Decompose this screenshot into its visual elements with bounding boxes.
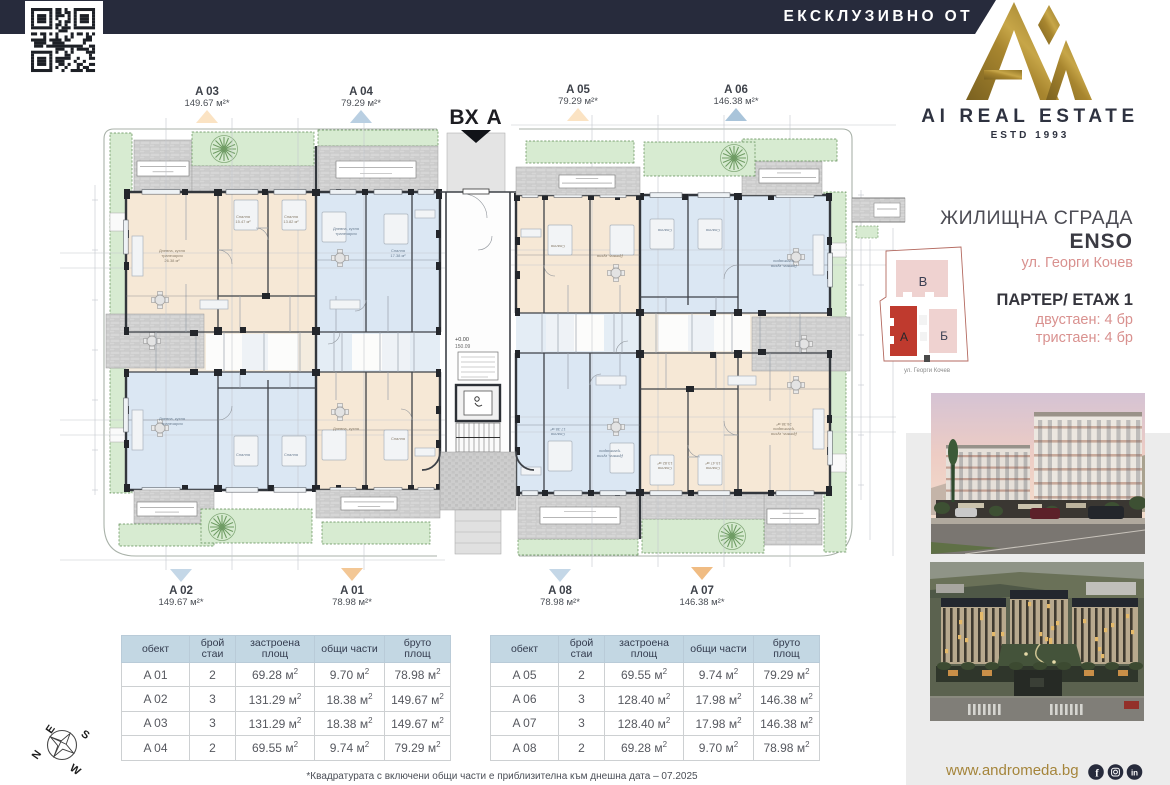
svg-text:A 05: A 05	[566, 84, 590, 96]
svg-text:78.98 м²*: 78.98 м²*	[540, 597, 580, 608]
svg-text:150.09: 150.09	[455, 344, 471, 350]
svg-text:E: E	[44, 723, 58, 736]
svg-text:ул. Георги Кочев: ул. Георги Кочев	[904, 368, 950, 374]
svg-text:В: В	[919, 274, 928, 289]
svg-text:in: in	[1131, 769, 1138, 778]
svg-text:W: W	[67, 762, 83, 778]
svg-text:N: N	[30, 748, 44, 761]
svg-text:трапезария: трапезария	[335, 231, 356, 236]
svg-text:A 06: A 06	[724, 84, 748, 96]
svg-text:Спалня: Спалня	[284, 452, 298, 457]
svg-text:149.67 м²*: 149.67 м²*	[158, 597, 203, 608]
svg-text:A 08: A 08	[548, 585, 572, 597]
svg-text:146.38 м²*: 146.38 м²*	[679, 597, 724, 608]
svg-text:A 07: A 07	[690, 585, 714, 597]
svg-text:17.38 м²: 17.38 м²	[390, 253, 406, 258]
svg-text:A 03: A 03	[195, 86, 219, 98]
svg-text:78.98 м²*: 78.98 м²*	[332, 597, 372, 608]
svg-text:S: S	[79, 728, 92, 742]
svg-text:26.38 м²: 26.38 м²	[164, 258, 180, 263]
svg-text:79.29 м²*: 79.29 м²*	[341, 98, 381, 109]
svg-text:трапезария: трапезария	[161, 421, 182, 426]
svg-text:Спалня: Спалня	[391, 436, 405, 441]
svg-text:13.82 м²: 13.82 м²	[283, 219, 299, 224]
svg-text:+0.00: +0.00	[455, 337, 469, 343]
svg-text:79.29 м²*: 79.29 м²*	[558, 96, 598, 107]
svg-text:15.47 м²: 15.47 м²	[235, 219, 251, 224]
svg-text:ВХ А: ВХ А	[449, 106, 502, 129]
svg-text:Дневна, кухня: Дневна, кухня	[333, 426, 359, 431]
svg-text:A 04: A 04	[349, 86, 373, 98]
svg-text:Спалня: Спалня	[236, 452, 250, 457]
svg-text:149.67 м²*: 149.67 м²*	[184, 98, 229, 109]
svg-text:A 01: A 01	[340, 585, 364, 597]
svg-text:A 02: A 02	[169, 585, 193, 597]
svg-text:146.38 м²*: 146.38 м²*	[713, 96, 758, 107]
